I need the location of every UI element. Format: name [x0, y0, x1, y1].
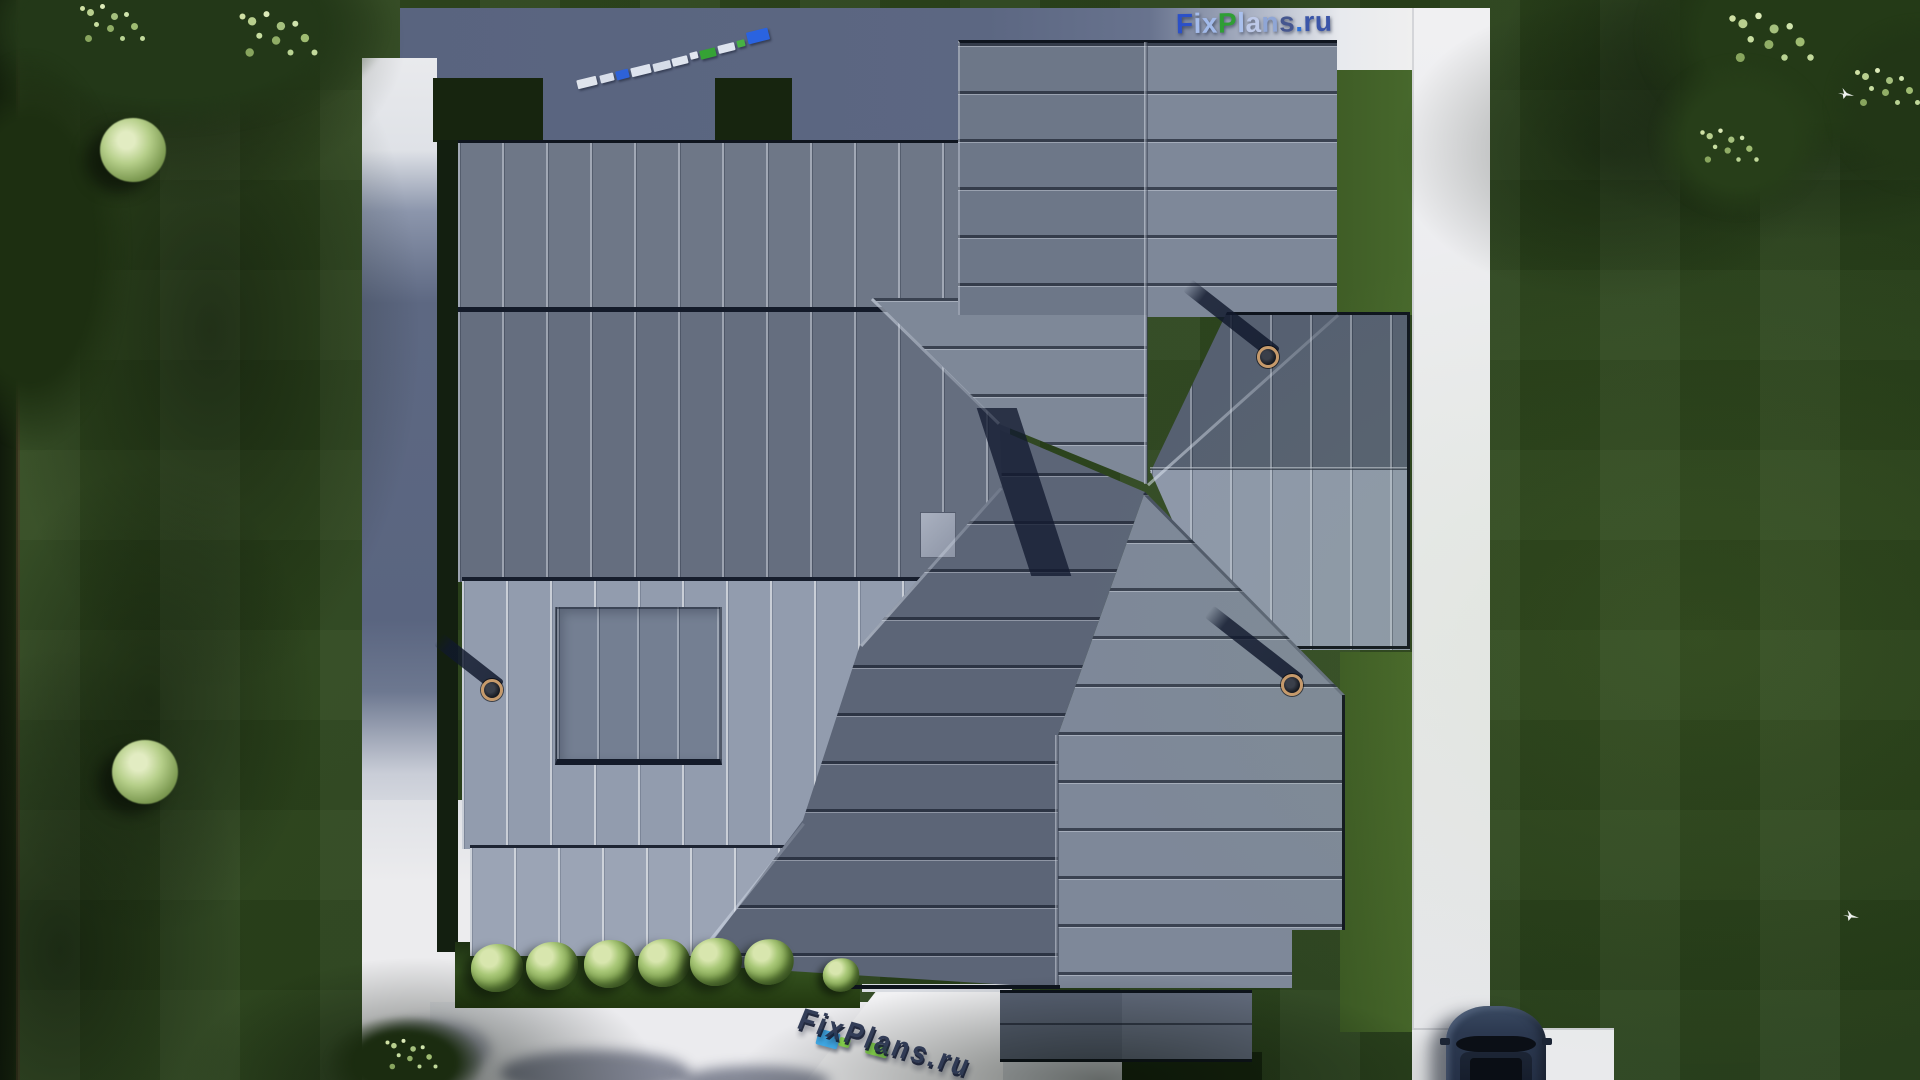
porch-roof-panel: [1000, 990, 1122, 1062]
grass-strip-top: [715, 78, 792, 142]
porch-roof-panel: [1122, 990, 1252, 1062]
chimney-pipe: [1257, 346, 1279, 368]
car-roof: [1460, 1052, 1532, 1080]
small-tree: [100, 118, 166, 182]
roof-vent-box: [920, 512, 956, 558]
foliage-highlight: [1855, 70, 1860, 75]
chimney: [1281, 674, 1303, 696]
grass-strip-west: [437, 140, 458, 952]
grass-strip-right-north: [1337, 70, 1412, 315]
logo-letter: a: [1245, 7, 1262, 38]
chimney: [481, 679, 503, 701]
roof-north-wing-east-slope: [1147, 40, 1337, 317]
tree-canopy: [1650, 55, 1830, 220]
logo-letter: s: [1279, 6, 1296, 37]
roof-east-wing-ridge: [1150, 467, 1410, 470]
car: [1446, 1006, 1546, 1080]
small-tree: [112, 740, 178, 804]
foliage-highlight: [386, 1041, 390, 1045]
chimney: [1257, 346, 1279, 368]
logo-letter: F: [1176, 8, 1194, 39]
roof-southeast-edge: [1342, 695, 1345, 930]
car-mirror: [1440, 1038, 1450, 1045]
roof-seam: [1000, 1023, 1122, 1025]
foliage-highlight: [1729, 15, 1736, 22]
roof-east-gable-edge: [1407, 312, 1410, 649]
roof-south-eave: [848, 985, 1060, 989]
car-mirror: [1542, 1038, 1552, 1045]
car-sunroof: [1470, 1058, 1522, 1080]
logo-letter: n: [1261, 7, 1279, 38]
aerial-house-render: FixPlans.ru FixPlans.ru: [0, 0, 1920, 1080]
logo-letter: P: [1218, 7, 1238, 38]
roof-south-wing-ridge: [1055, 735, 1059, 988]
roof-inset-panel: [555, 607, 722, 765]
grass-strip-top: [433, 78, 543, 142]
roof-north-wing-west-slope: [958, 40, 1149, 315]
foliage-highlight: [80, 6, 85, 11]
logo-letter: r: [1303, 6, 1315, 37]
grass-strip-right-south: [1340, 652, 1412, 1032]
logo-letter: x: [1202, 8, 1219, 39]
right-path: [1412, 8, 1490, 1032]
foliage-highlight: [240, 14, 246, 20]
chimney-pipe: [1281, 674, 1303, 696]
roof-west-north-slope: [458, 140, 958, 310]
logo-letter: u: [1315, 6, 1333, 37]
roof-north-wing-ridge: [1144, 42, 1148, 484]
roof-seam: [1122, 1023, 1252, 1025]
chimney-pipe: [481, 679, 503, 701]
foliage-highlight: [1700, 130, 1705, 135]
fixplans-logo: FixPlans.ru: [1176, 6, 1333, 41]
car-windshield: [1456, 1036, 1536, 1052]
